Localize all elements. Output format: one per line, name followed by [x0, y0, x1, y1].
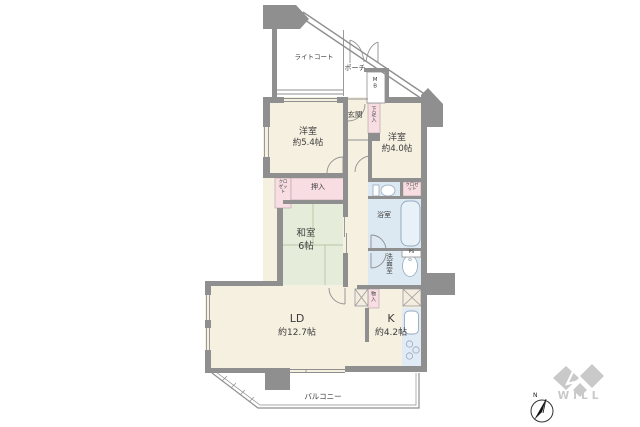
kitchen-size: 約4.2帖 [361, 327, 421, 339]
bedroom2-label: 洋室 約4.0帖 [367, 132, 427, 156]
corner-pillar [263, 5, 309, 29]
will-logo-text: WILL [549, 390, 611, 402]
bathtub-icon [401, 201, 420, 246]
side-pillar [421, 273, 455, 295]
pipe-space-label: PS [402, 250, 421, 256]
balcony-pillar [265, 368, 290, 390]
compass-north-label: N [533, 392, 538, 399]
closet-1-label: クロゼット [277, 181, 290, 196]
storage-label: 物入 [370, 291, 377, 302]
toilet-tank-icon [373, 185, 379, 196]
compass-icon [531, 399, 553, 422]
entrance-door-leaf [366, 42, 378, 63]
kitchen-label: K 約4.2帖 [361, 312, 421, 339]
bedroom1-label: 洋室 約5.4帖 [268, 126, 348, 150]
bedroom2-name: 洋室 [367, 132, 427, 144]
living-dining-name: LD [237, 312, 357, 327]
bathroom-label: 浴室 [366, 211, 402, 220]
faucet-icon [409, 258, 412, 261]
living-dining-size: 約12.7帖 [237, 327, 357, 339]
japanese-room-name: 和室 [281, 228, 331, 241]
bedroom2-size: 約4.0帖 [367, 144, 427, 155]
meter-box-label: MB [371, 77, 378, 90]
light-court-label: ライトコート [283, 53, 345, 61]
shoe-box-label: 下足入 [370, 106, 377, 123]
floor-plan-drawing [0, 0, 640, 427]
washroom-label: 洗面室 [384, 253, 392, 274]
bedroom1-size: 約5.4帖 [268, 138, 348, 149]
toilet-bowl-icon [381, 185, 395, 196]
closet-2-label: クロゼット [404, 184, 421, 194]
porch-label: ポーチ [336, 64, 374, 73]
living-dining-label: LD 約12.7帖 [237, 312, 357, 339]
bedroom1-name: 洋室 [268, 126, 348, 138]
japanese-room-size: 6帖 [281, 241, 331, 254]
floor-plan: ライトコート ポーチ MB 玄関 下足入 洋室 約5.4帖 洋室 約4.0帖 ク… [0, 0, 640, 427]
kitchen-name: K [361, 312, 421, 327]
balcony-label: バルコニー [280, 392, 366, 402]
balcony-outline [212, 372, 419, 408]
oshiire-label: 押入 [294, 183, 342, 192]
entrance-label: 玄関 [338, 110, 372, 120]
japanese-room-label: 和室 6帖 [281, 228, 331, 254]
